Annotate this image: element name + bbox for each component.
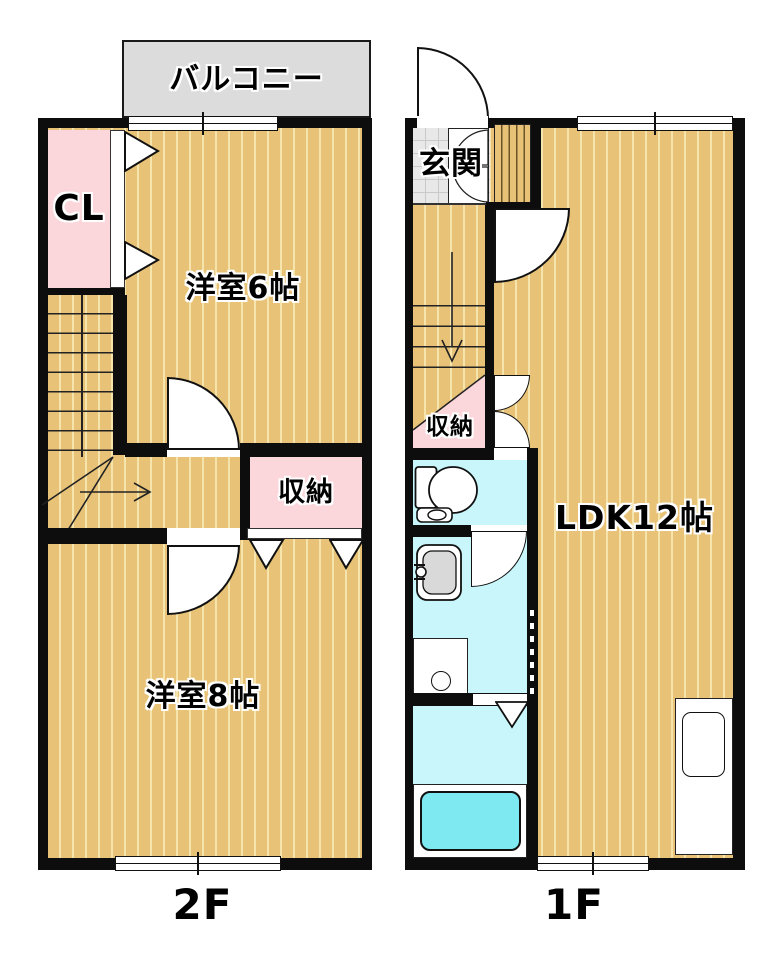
f1-wall xyxy=(531,120,541,212)
washing-machine-pan xyxy=(413,638,468,694)
f2-floor-label: 2F xyxy=(120,882,285,928)
f1-floor-label: 1F xyxy=(494,882,654,928)
window-symbol xyxy=(128,116,278,131)
window-tick xyxy=(202,112,204,135)
f2-stair-side-wall xyxy=(113,295,127,455)
floorplan-page: バルコニー 収納 xyxy=(0,0,772,961)
toilet-icon xyxy=(414,463,482,525)
f2-room8-label: 洋室8帖 xyxy=(103,680,303,713)
kitchen-sink xyxy=(682,712,725,777)
balcony-label: バルコニー xyxy=(169,63,323,96)
f1-storage-label: 収納 xyxy=(413,415,487,440)
window-symbol xyxy=(577,116,733,131)
entrance-door-swing xyxy=(417,47,489,119)
window-symbol xyxy=(537,856,649,871)
balcony-area: バルコニー xyxy=(122,40,371,118)
entrance-step-line xyxy=(413,203,486,205)
f2-stair-divider-line xyxy=(81,295,83,457)
window-tick xyxy=(654,112,656,135)
stair-down-arrow xyxy=(440,250,466,364)
f2-door-opening xyxy=(167,528,240,545)
f2-room6-label: 洋室6帖 xyxy=(143,272,343,305)
f2-divider-wall xyxy=(125,443,167,457)
entrance-label: 玄関 xyxy=(411,147,491,181)
f1-door-opening xyxy=(494,448,530,460)
closet-door-triangle xyxy=(249,539,285,570)
shoe-cabinet xyxy=(494,124,531,204)
bathtub xyxy=(420,791,521,851)
closet-door-triangle xyxy=(329,539,365,570)
closet-door-triangle xyxy=(124,131,160,172)
f2-storage-label: 収納 xyxy=(278,478,334,508)
washbasin-icon xyxy=(413,542,465,604)
stair-up-arrow xyxy=(38,450,168,540)
f2-closet-label: CL xyxy=(46,189,112,229)
f2-storage-door-track xyxy=(247,528,362,539)
wall-dashed-segment xyxy=(530,610,534,694)
window-tick xyxy=(197,852,199,875)
f2-divider-wall xyxy=(240,443,372,457)
folding-door xyxy=(495,701,529,729)
window-symbol xyxy=(115,856,281,871)
drain-circle xyxy=(431,671,451,691)
f2-storage-room: 収納 xyxy=(250,457,362,528)
f2-closet-door-track xyxy=(110,130,125,288)
ldk-label: LDK12帖 xyxy=(532,500,737,536)
window-tick xyxy=(592,852,594,875)
f2-hall-wall xyxy=(38,528,167,544)
